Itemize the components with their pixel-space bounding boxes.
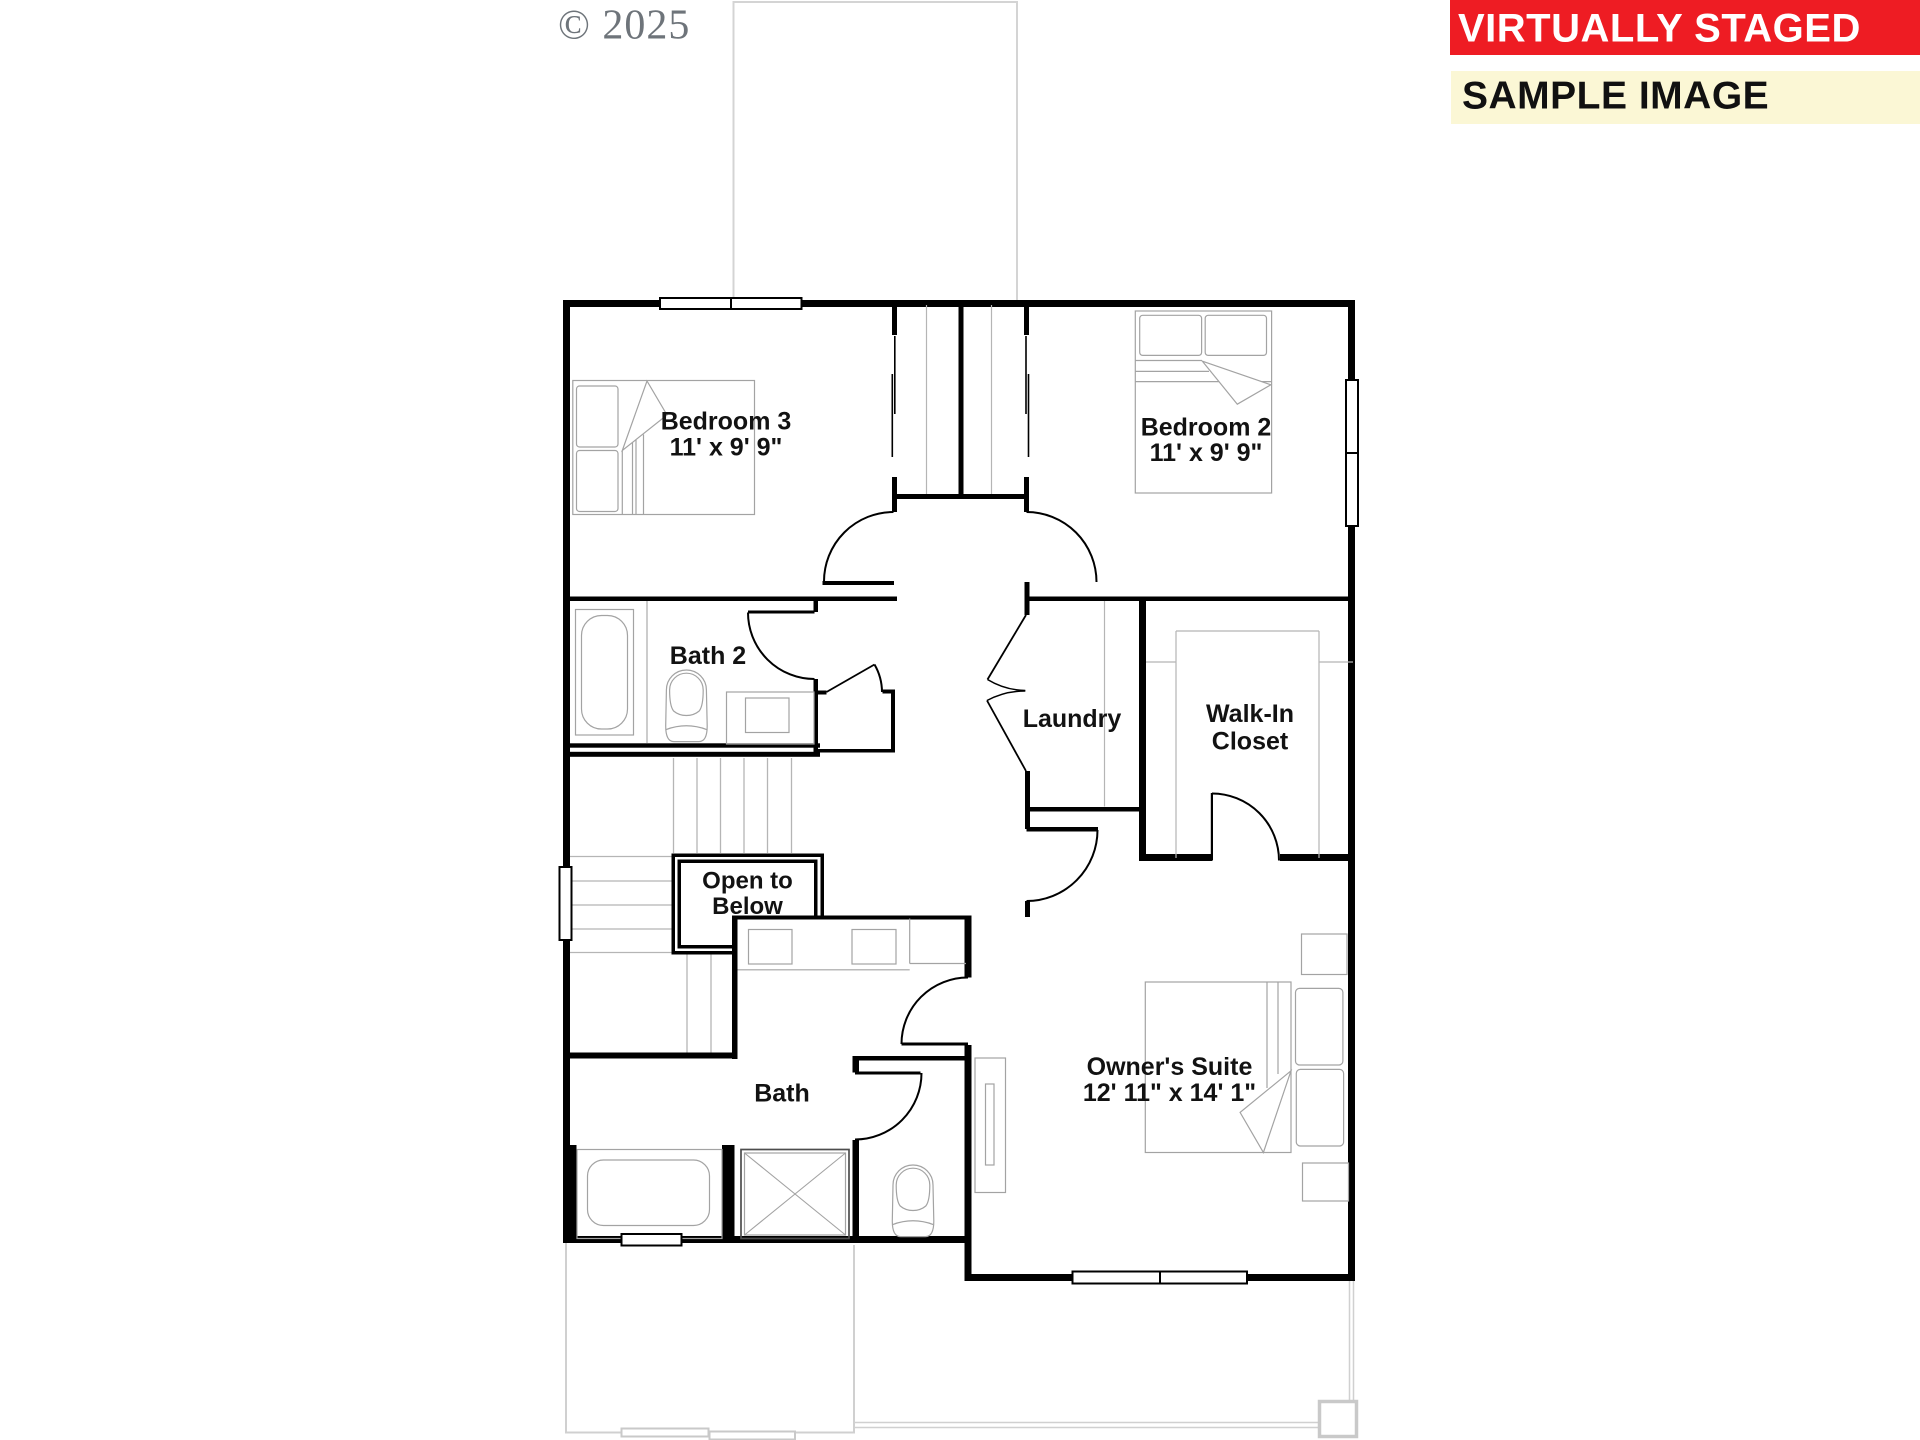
svg-text:Bath: Bath bbox=[754, 1080, 810, 1108]
svg-text:© 2025: © 2025 bbox=[558, 3, 690, 49]
svg-text:Bedroom 2: Bedroom 2 bbox=[1141, 414, 1272, 442]
svg-text:Open to: Open to bbox=[702, 868, 793, 895]
svg-text:11' x 9' 9": 11' x 9' 9" bbox=[1150, 439, 1263, 467]
svg-text:Below: Below bbox=[712, 893, 783, 920]
svg-text:SAMPLE IMAGE: SAMPLE IMAGE bbox=[1462, 75, 1769, 118]
svg-text:Walk-In: Walk-In bbox=[1206, 700, 1294, 728]
svg-text:Bedroom 3: Bedroom 3 bbox=[661, 408, 792, 436]
svg-text:Bath 2: Bath 2 bbox=[670, 642, 746, 670]
svg-text:Laundry: Laundry bbox=[1023, 705, 1122, 733]
svg-text:Owner's Suite: Owner's Suite bbox=[1087, 1053, 1253, 1081]
svg-text:Closet: Closet bbox=[1212, 728, 1289, 756]
svg-text:VIRTUALLY STAGED: VIRTUALLY STAGED bbox=[1458, 7, 1861, 51]
svg-text:12' 11" x 14' 1": 12' 11" x 14' 1" bbox=[1083, 1079, 1256, 1107]
svg-text:11' x 9' 9": 11' x 9' 9" bbox=[670, 434, 783, 462]
